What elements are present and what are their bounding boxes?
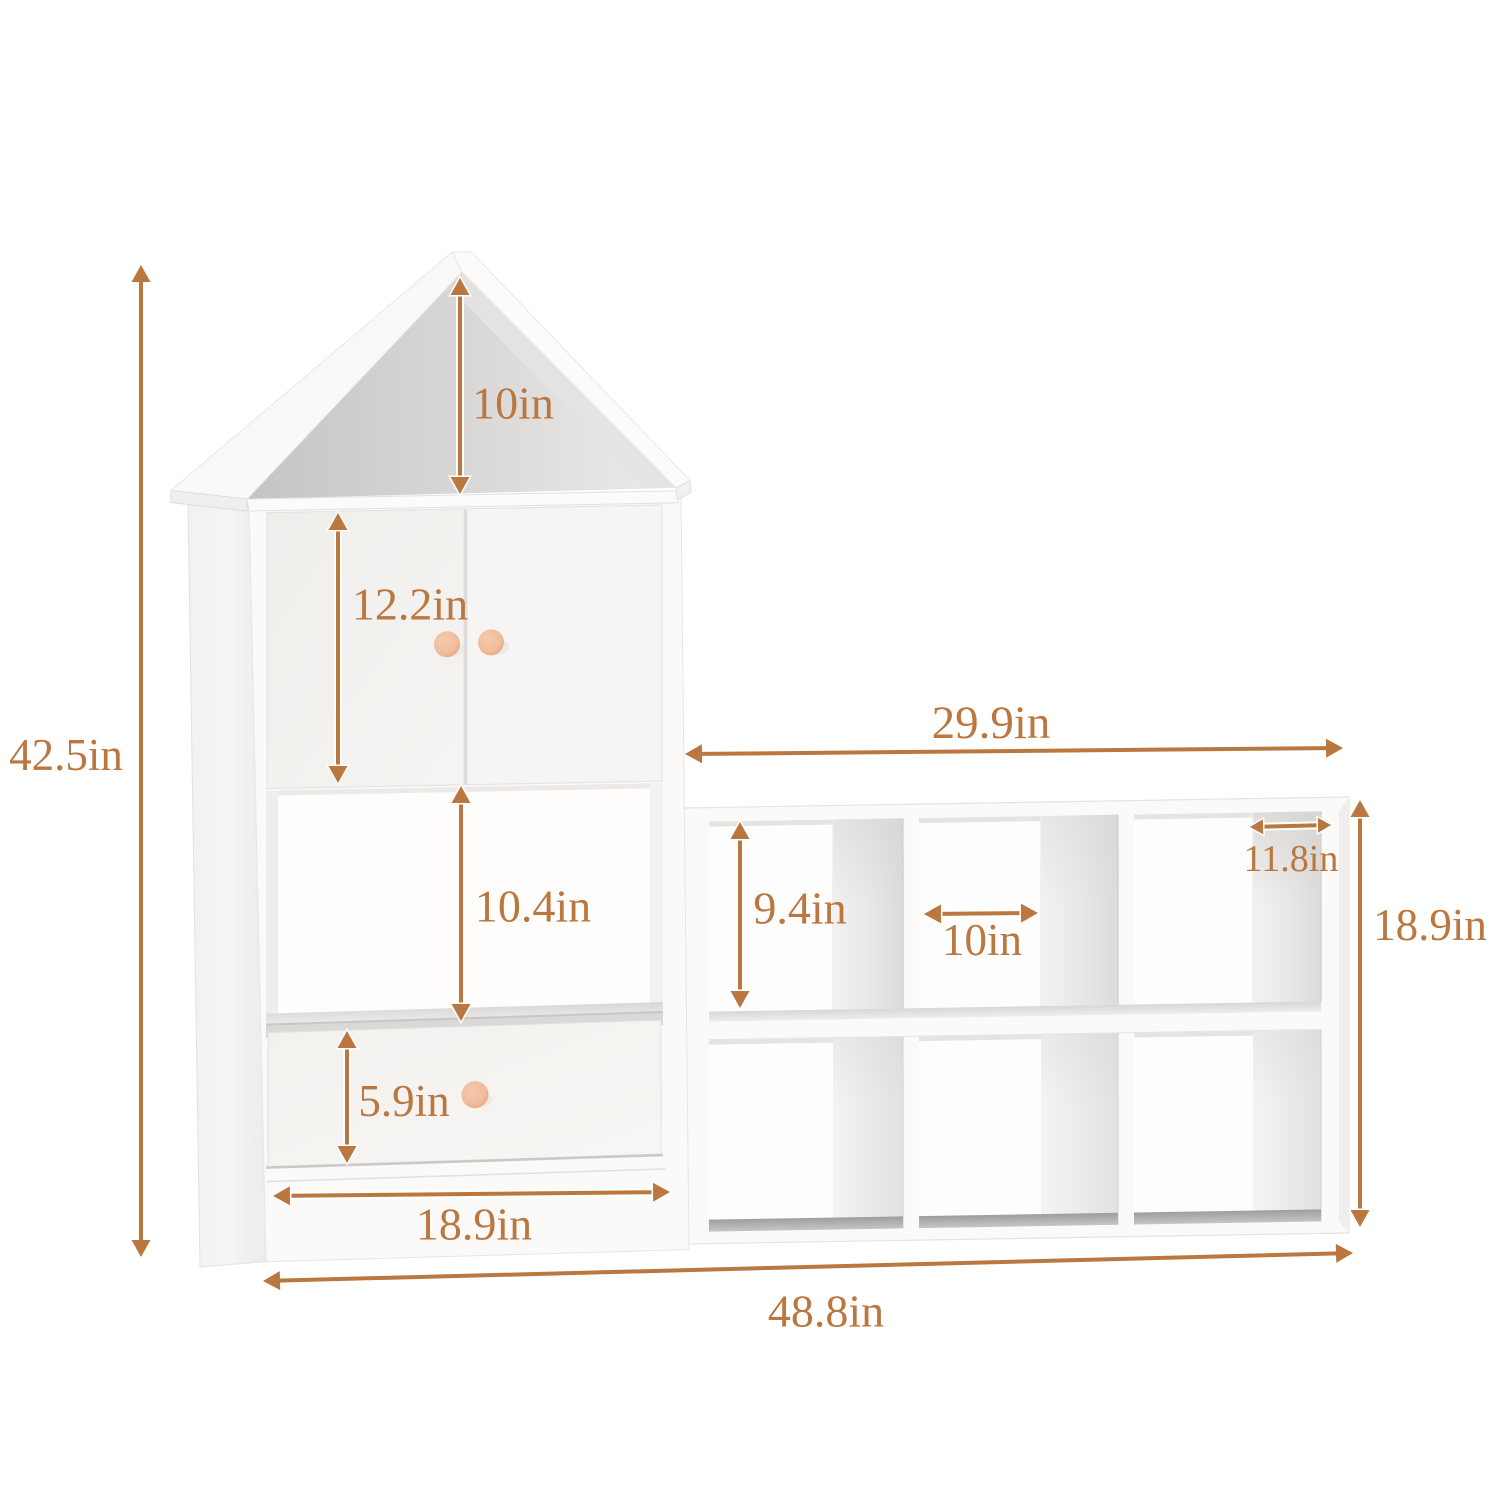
svg-text:5.9in: 5.9in: [358, 1076, 449, 1126]
svg-text:12.2in: 12.2in: [352, 579, 468, 630]
svg-text:18.9in: 18.9in: [416, 1199, 532, 1250]
svg-text:48.8in: 48.8in: [768, 1286, 884, 1337]
svg-text:42.5in: 42.5in: [9, 730, 123, 780]
svg-text:11.8in: 11.8in: [1244, 838, 1339, 880]
svg-text:10in: 10in: [942, 915, 1022, 965]
svg-text:9.4in: 9.4in: [753, 883, 846, 934]
svg-text:10.4in: 10.4in: [475, 881, 591, 932]
svg-text:10in: 10in: [472, 378, 554, 429]
svg-text:18.9in: 18.9in: [1373, 900, 1487, 950]
svg-text:29.9in: 29.9in: [932, 697, 1051, 749]
